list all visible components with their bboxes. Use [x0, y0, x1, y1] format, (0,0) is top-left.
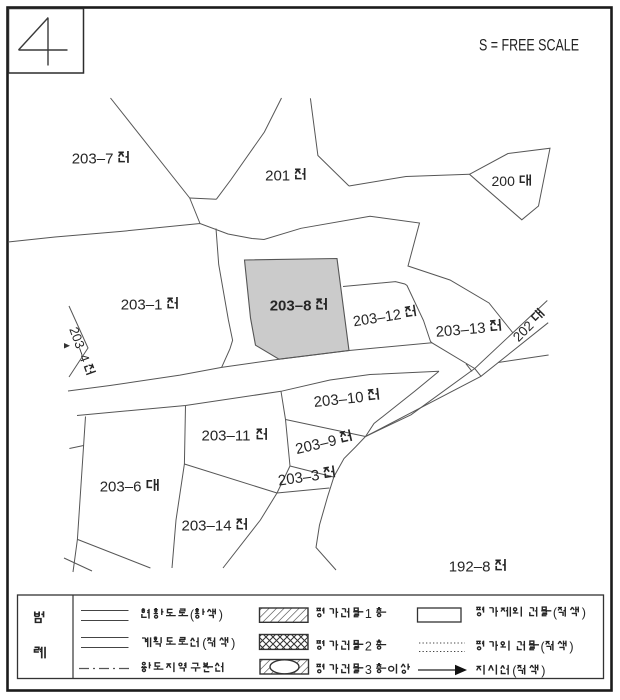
- svg-text:): ): [541, 664, 545, 678]
- svg-text:203–11: 203–11: [202, 427, 251, 444]
- svg-text:S = FREE SCALE: S = FREE SCALE: [479, 37, 579, 55]
- svg-text:): ): [582, 606, 586, 620]
- svg-text:1: 1: [365, 607, 372, 621]
- svg-text:3: 3: [365, 663, 372, 677]
- svg-text:192–8: 192–8: [449, 558, 491, 575]
- svg-text:2: 2: [365, 640, 372, 654]
- svg-text:201: 201: [265, 167, 290, 184]
- svg-text:): ): [231, 637, 235, 651]
- svg-text:203–8: 203–8: [270, 297, 312, 314]
- svg-text:203–14: 203–14: [182, 517, 232, 534]
- svg-text:203–6: 203–6: [100, 478, 142, 495]
- svg-text:200: 200: [492, 173, 516, 189]
- svg-text:): ): [219, 608, 223, 622]
- svg-text:203–1: 203–1: [121, 296, 163, 313]
- svg-text:203–7: 203–7: [72, 150, 114, 167]
- svg-text:): ): [569, 640, 573, 654]
